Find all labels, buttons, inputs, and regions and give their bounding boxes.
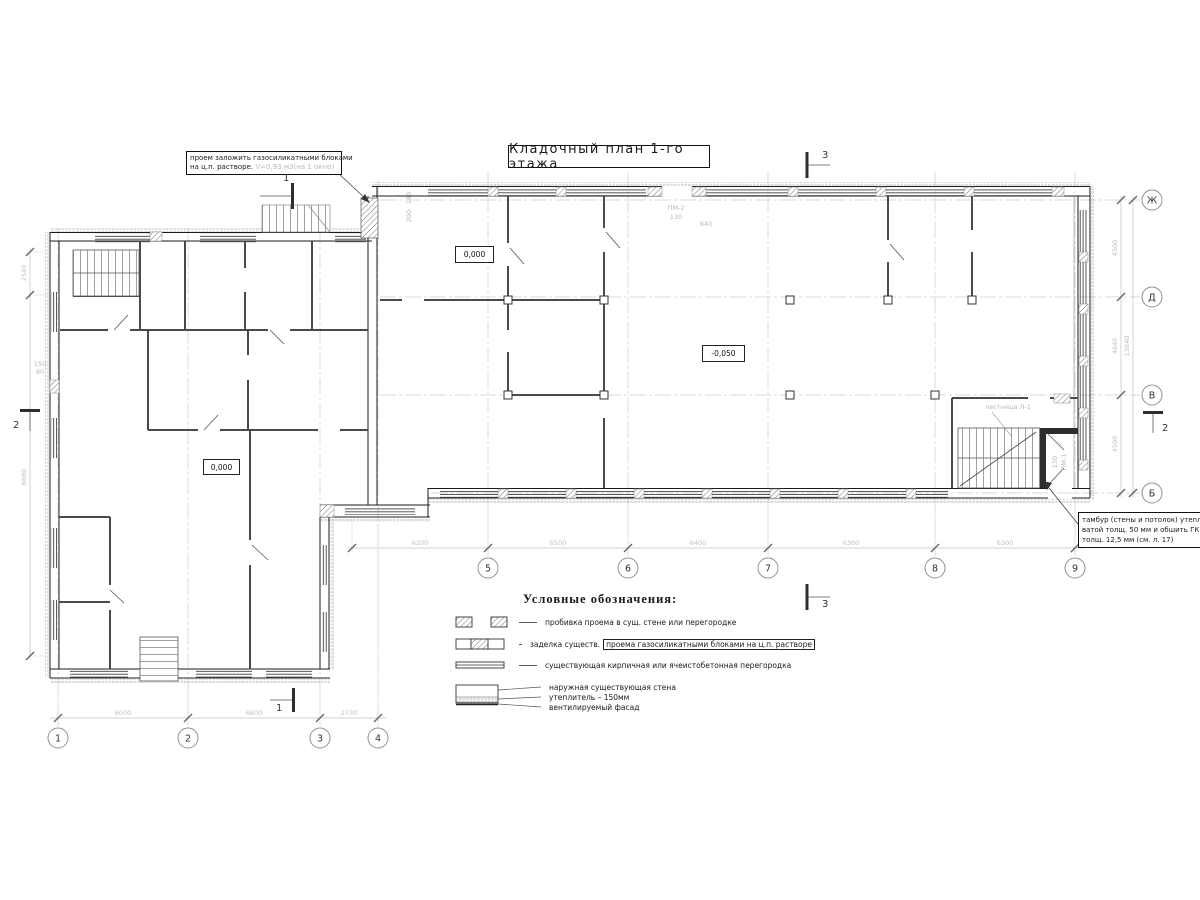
dim-d-v: 4840	[1111, 338, 1119, 355]
dim-4-5: 6200	[412, 539, 429, 547]
legend-wall-build-up: наружная существующая стена утеплитель –…	[455, 683, 815, 713]
legend-item-zadelka: заделка существ. проема газосиликатными …	[455, 637, 815, 651]
legend-item-existing-wall: существующая кирпичная или ячеистобетонн…	[455, 659, 815, 671]
right-block-bottom-windows	[440, 490, 948, 498]
opening-note: проем заложить газосиликатными блоками н…	[186, 151, 342, 175]
axis-v: В	[1149, 391, 1156, 402]
small-labels: ПМ-2 130 840 лестница Л-1 ПМ-1 130 150 8…	[34, 192, 1068, 471]
axis-8: 8	[932, 564, 938, 575]
tambour-note-line2: ватой толщ. 50 мм и обшить ГК	[1082, 525, 1200, 535]
axis-4: 4	[375, 734, 381, 745]
opening-note-volume: V=0,93 м3(на 1 окно)	[255, 163, 334, 171]
probivka-symbol	[455, 615, 517, 629]
floor-plan-drawing: .wall{stroke:#1b1b1b;stroke-width:1;fill…	[0, 0, 1200, 900]
pm1-width: 130	[1051, 456, 1059, 468]
dimensions-bottom-mid: 6200 6500 6400 6300 6300 5 6 7 8 9	[348, 512, 1085, 578]
left-block-windows	[51, 234, 415, 679]
dim-v-b: 4500	[1111, 436, 1119, 453]
exterior-stair	[262, 205, 330, 232]
dim-left-2: 6680	[20, 469, 28, 486]
stair-L1	[958, 428, 1040, 488]
legend-item-probivka: пробивка проема в сущ. стене или перегор…	[455, 615, 815, 629]
dim-2-3: 6800	[246, 709, 263, 717]
wall-layers-symbol	[455, 683, 545, 713]
section-2-left: 2	[13, 420, 19, 431]
tambour-note: тамбур (стены и потолок) утепли ватой то…	[1078, 512, 1200, 548]
dim-150: 150	[34, 360, 46, 368]
wall-layer-1: наружная существующая стена	[549, 683, 676, 693]
stair-label: лестница Л-1	[985, 403, 1031, 411]
section-1-bottom: 1	[276, 703, 282, 714]
level-mark-entry: 0,000	[455, 246, 494, 263]
level-mark-hall: -0,050	[702, 345, 745, 362]
axis-5: 5	[485, 564, 491, 575]
pm1-label: ПМ-1	[1060, 454, 1068, 471]
dimensions-bottom-left: 6000 6800 2730 1 2 3 4	[48, 524, 388, 748]
legend-item2-boxed: проема газосиликатными блоками на ц.п. р…	[603, 639, 815, 650]
dim-7-8: 6300	[843, 539, 860, 547]
legend-heading: Условные обозначения:	[523, 592, 815, 607]
wall-layer-2: утеплитель – 150мм	[549, 693, 676, 703]
axis-2: 2	[185, 734, 191, 745]
zadelka-symbol	[455, 637, 517, 651]
axis-7: 7	[765, 564, 771, 575]
dim-left-1: 2540	[20, 265, 28, 282]
dim-3-4: 2730	[341, 709, 358, 717]
axis-9: 9	[1072, 564, 1078, 575]
wall-layer-3: вентилируемый фасад	[549, 703, 676, 713]
blocked-opening-hatch	[361, 198, 378, 238]
drawing-title: Кладочный план 1-го этажа	[508, 145, 710, 168]
right-block-top-windows	[428, 188, 1052, 196]
legend-dash	[519, 622, 537, 623]
section-3-bottom: 3	[822, 599, 828, 610]
dim-6-7: 6400	[690, 539, 707, 547]
drawing-title-text: Кладочный план 1-го этажа	[509, 142, 709, 172]
legend-item2-prefix: заделка существ.	[530, 640, 600, 649]
dim-1-2: 6000	[115, 709, 132, 717]
legend-item1-label: пробивка проема в сущ. стене или перегор…	[545, 618, 736, 627]
dim-8-9: 6300	[997, 539, 1014, 547]
axis-3: 3	[317, 734, 323, 745]
axis-d: Д	[1148, 293, 1155, 304]
dimensions-right: 4500 4840 4500 13840 Ж Д В Б	[1111, 190, 1162, 503]
dim-5-6: 6500	[550, 539, 567, 547]
dim-140: 140	[405, 192, 413, 204]
axis-b: Б	[1149, 489, 1156, 500]
dim-right-total: 13840	[1123, 336, 1131, 357]
level-mark-left: 0,000	[203, 459, 240, 475]
stair-bottom-left	[140, 637, 178, 681]
pm2-label: ПМ-2	[668, 204, 685, 212]
drawing-sheet: .wall{stroke:#1b1b1b;stroke-width:1;fill…	[0, 0, 1200, 900]
dim-80: 80	[36, 368, 44, 376]
left-block-partitions	[59, 241, 368, 669]
opening-note-line2: на ц.п. растворе. V=0,93 м3(на 1 окно)	[190, 163, 338, 172]
right-block-right-windows	[1079, 210, 1088, 470]
wall-layer-callouts: наружная существующая стена утеплитель –…	[549, 683, 676, 713]
axis-6: 6	[625, 564, 631, 575]
pm2-dim: 840	[700, 220, 712, 228]
legend-dash	[519, 665, 537, 666]
axis-zh: Ж	[1147, 196, 1158, 207]
existing-wall-symbol	[455, 659, 517, 671]
section-3-top: 3	[822, 150, 828, 161]
dim-200: 200	[405, 210, 413, 222]
opening-note-line1: проем заложить газосиликатными блоками	[190, 154, 338, 163]
section-2-right: 2	[1162, 423, 1168, 434]
legend-item3-label: существующая кирпичная или ячеистобетонн…	[545, 661, 791, 670]
stair-top-left	[73, 250, 139, 296]
pm2-width: 130	[670, 213, 682, 221]
dim-zh-d: 4500	[1111, 240, 1119, 257]
legend-dash	[519, 644, 522, 645]
tambour-note-line3: толщ. 12,5 мм (см. л. 17)	[1082, 535, 1200, 545]
legend: Условные обозначения: пробивка проема в …	[455, 592, 815, 713]
axis-1: 1	[55, 734, 61, 745]
tambour-note-line1: тамбур (стены и потолок) утепли	[1082, 515, 1200, 525]
tambour-walls	[1040, 428, 1078, 488]
